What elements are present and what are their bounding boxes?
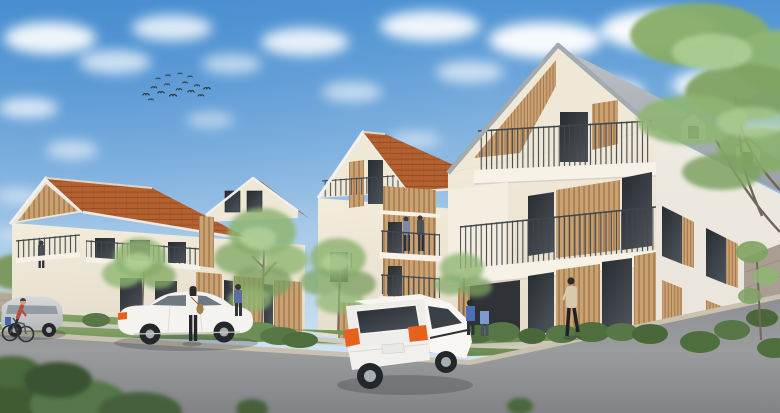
person-shadow	[563, 336, 581, 341]
person-leg	[486, 324, 489, 336]
person-torso	[466, 306, 475, 321]
sedan-taillight	[118, 312, 127, 320]
tree-highlight	[240, 227, 276, 249]
tree-canopy	[682, 154, 762, 190]
person-leg	[481, 324, 484, 336]
person-leg	[239, 303, 242, 316]
person-head	[235, 284, 241, 290]
bush	[746, 309, 778, 327]
bush	[632, 324, 668, 344]
pannier-bag	[5, 317, 11, 325]
tree-highlight	[124, 253, 152, 271]
bush	[24, 362, 92, 398]
bush	[714, 320, 750, 340]
cloud	[380, 11, 480, 41]
tree-highlight	[672, 34, 752, 70]
cloud	[489, 22, 601, 58]
bush	[82, 313, 110, 327]
wood-panel	[199, 216, 214, 268]
person-head	[417, 215, 422, 220]
person-torso	[234, 290, 242, 303]
person-torso	[566, 286, 577, 308]
hatchback-taillight	[344, 328, 360, 347]
license-plate	[382, 343, 405, 354]
wood-shutter	[726, 238, 738, 288]
window	[602, 258, 632, 330]
wheel-hub	[46, 327, 52, 333]
window	[528, 272, 554, 335]
person-shadow	[182, 342, 202, 347]
cloud	[186, 112, 234, 128]
person-torso	[480, 311, 489, 324]
cloud	[202, 54, 262, 74]
person-leg	[467, 321, 470, 335]
window	[662, 206, 682, 264]
sapling-leaves	[738, 288, 762, 304]
person-hair	[190, 286, 197, 297]
architectural-rendering: Daylight architectural rendering of a re…	[0, 0, 780, 413]
cloud	[261, 28, 349, 56]
cloud	[46, 141, 98, 159]
wheel-hub	[441, 357, 451, 367]
bush	[282, 332, 318, 348]
person-leg	[189, 315, 192, 341]
cloud	[322, 82, 382, 102]
minivan-windows	[6, 305, 58, 314]
bush	[680, 331, 720, 353]
cloud	[79, 50, 151, 74]
person-leg	[567, 308, 569, 336]
hatchback-taillight	[408, 325, 428, 343]
sapling-leaves	[736, 241, 768, 263]
tree-highlight	[322, 253, 350, 271]
shoulder-bag	[196, 304, 203, 314]
person-leg	[235, 303, 238, 316]
person-head	[567, 277, 574, 284]
wood-shutter	[682, 216, 694, 268]
person-head	[481, 305, 487, 311]
rendering-canvas: Daylight architectural rendering of a re…	[0, 0, 780, 413]
bush	[518, 328, 546, 344]
white-hatchback	[337, 294, 473, 395]
cloud	[0, 98, 58, 118]
person-leg	[472, 321, 475, 335]
person-head	[403, 216, 408, 221]
person-leg	[194, 315, 197, 341]
wood-panel	[634, 252, 656, 328]
sapling-leaves	[753, 267, 779, 285]
cloud	[436, 61, 504, 83]
tree-canopy	[460, 277, 492, 297]
bush	[484, 322, 520, 342]
cloud	[4, 22, 96, 54]
wheel-hub	[364, 370, 376, 382]
person-head	[467, 300, 473, 306]
cloud	[132, 15, 212, 41]
